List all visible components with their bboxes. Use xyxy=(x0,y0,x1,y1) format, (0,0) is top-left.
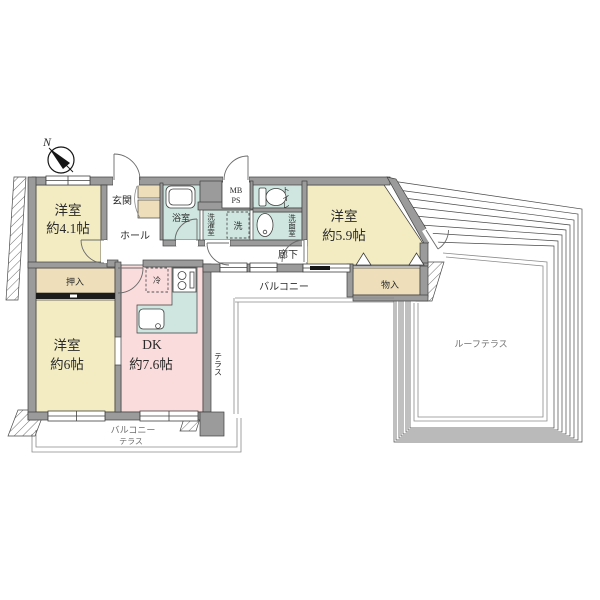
label-washroom: 洗面室 xyxy=(287,213,296,237)
oshiire-sliding-door xyxy=(36,293,115,299)
label-genkan: 玄関 xyxy=(112,194,132,207)
label-bedroom41-size: 約4.1帖 xyxy=(46,221,90,236)
label-dk-size: 約7.6帖 xyxy=(129,357,173,372)
label-bedroom59-size: 約5.9帖 xyxy=(322,228,366,243)
label-fridge: 冷 xyxy=(153,275,161,285)
label-balcony-bottom: バルコニー xyxy=(111,425,156,435)
label-laundry: 洗濯室 xyxy=(206,212,215,236)
label-washer: 洗 xyxy=(233,220,242,231)
window-bedroom59-balcony xyxy=(303,264,350,272)
label-bath: 浴室 xyxy=(172,212,190,223)
label-roof-terrace: ルーフテラス xyxy=(454,339,507,349)
label-storage: 物入 xyxy=(381,279,399,290)
kitchen-sink xyxy=(139,309,164,329)
label-bedroom59-name: 洋室 xyxy=(331,208,358,224)
window-corridor-balcony-2 xyxy=(250,263,277,272)
label-bedroom6-name: 洋室 xyxy=(54,337,81,353)
label-ps: PS xyxy=(232,196,241,205)
label-corridor: 廊下 xyxy=(278,248,298,261)
label-dk-name: DK xyxy=(142,337,162,352)
label-toilet: トイレ xyxy=(282,186,291,209)
washbasin xyxy=(257,214,273,237)
label-mb: MB xyxy=(230,186,242,195)
window-top-bedroom41 xyxy=(46,176,90,185)
label-hall: ホール xyxy=(120,230,150,242)
corner-pillar xyxy=(200,412,224,436)
window-bottom-bedroom6 xyxy=(48,411,105,421)
label-terrace-bottom: テラス xyxy=(119,437,143,446)
floorplan-drawing: N 洋室 約4.1帖 玄関 ホール 浴室 MB PS 洗濯室 洗 トイレ 洗面室… xyxy=(0,0,600,600)
stove xyxy=(173,268,196,292)
room-bedroom-6 xyxy=(36,300,115,412)
label-bedroom41-name: 洋室 xyxy=(55,202,82,218)
label-terrace-side: テラス xyxy=(214,352,223,376)
bathtub xyxy=(166,186,195,208)
label-bedroom6-size: 約6帖 xyxy=(50,357,84,372)
window-bottom-dk xyxy=(140,411,198,421)
label-oshiire: 押入 xyxy=(66,276,84,287)
floorplan-page: N 洋室 約4.1帖 玄関 ホール 浴室 MB PS 洗濯室 洗 トイレ 洗面室… xyxy=(0,0,600,600)
label-balcony-mid: バルコニー xyxy=(259,281,309,293)
compass-north-label: N xyxy=(42,135,52,149)
shoe-cabinet-lower xyxy=(138,200,160,218)
